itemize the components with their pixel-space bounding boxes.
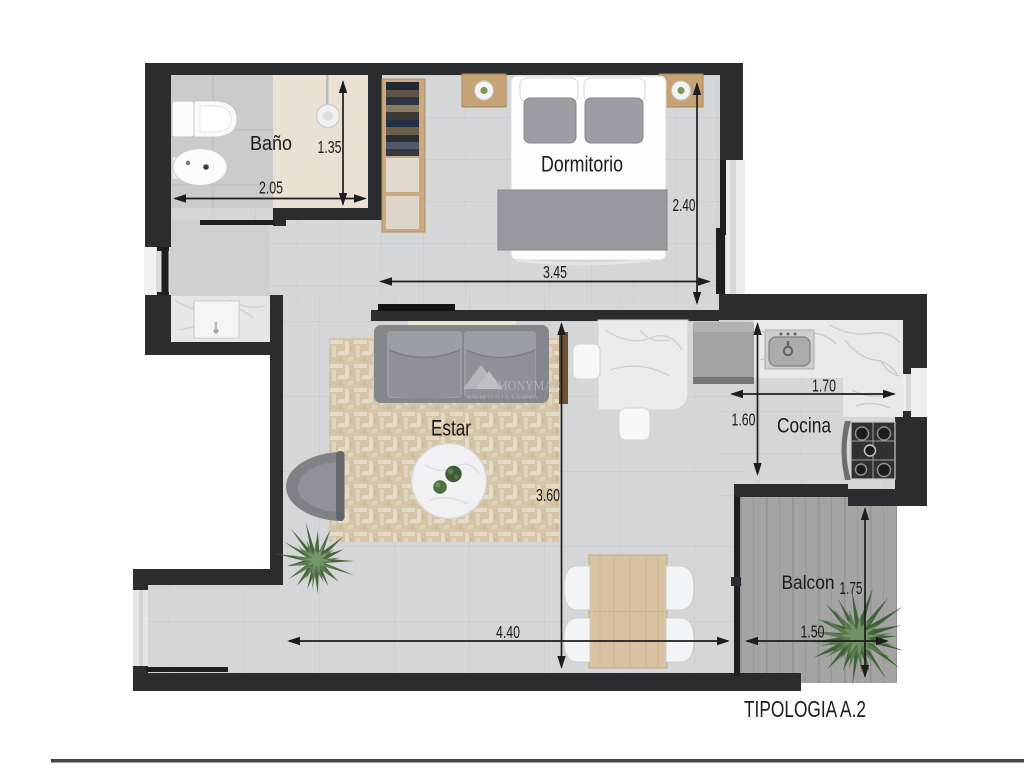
svg-text:3.60: 3.60: [536, 485, 560, 505]
svg-text:Baño: Baño: [250, 133, 292, 155]
svg-text:1.35: 1.35: [318, 137, 342, 157]
svg-text:4.40: 4.40: [496, 622, 520, 642]
svg-text:1.50: 1.50: [801, 622, 825, 642]
svg-text:1.75: 1.75: [840, 578, 863, 598]
svg-text:MONYMAR: MONYMAR: [497, 378, 561, 393]
svg-text:Dormitorio: Dormitorio: [541, 152, 623, 177]
svg-text:1.70: 1.70: [812, 376, 836, 396]
svg-text:3.45: 3.45: [543, 262, 567, 282]
svg-text:Cocina: Cocina: [777, 415, 831, 438]
svg-text:TIPOLOGIA A.2: TIPOLOGIA A.2: [744, 696, 866, 722]
svg-text:2.40: 2.40: [673, 195, 696, 215]
svg-text:Balcon: Balcon: [782, 573, 835, 594]
svg-text:I N M O B I L I A R I A: I N M O B I L I A R I A: [468, 394, 538, 401]
svg-text:1.60: 1.60: [732, 410, 756, 430]
svg-text:Estar: Estar: [431, 416, 471, 441]
svg-text:2.05: 2.05: [259, 178, 283, 198]
